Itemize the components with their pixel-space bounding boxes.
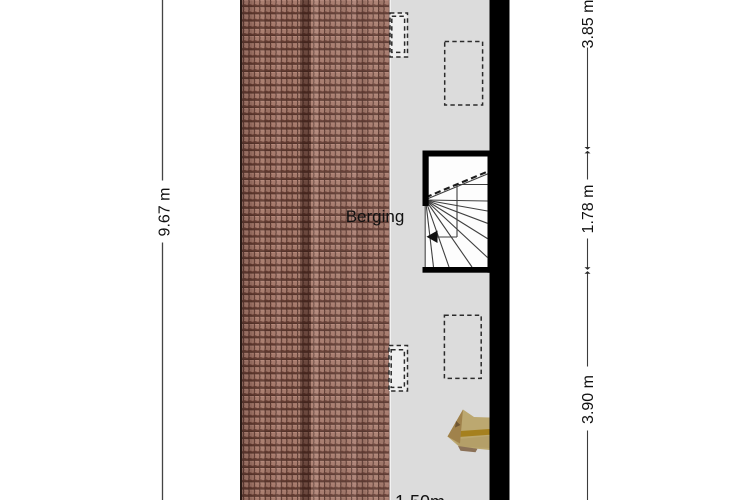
svg-text:3.85 m: 3.85 m: [580, 0, 597, 48]
svg-text:3.90 m: 3.90 m: [580, 375, 597, 424]
svg-text:9.67 m: 9.67 m: [156, 188, 173, 237]
svg-text:1.78 m: 1.78 m: [580, 185, 597, 234]
svg-text:Berging: Berging: [346, 207, 405, 226]
svg-text:1.50m: 1.50m: [395, 492, 445, 500]
